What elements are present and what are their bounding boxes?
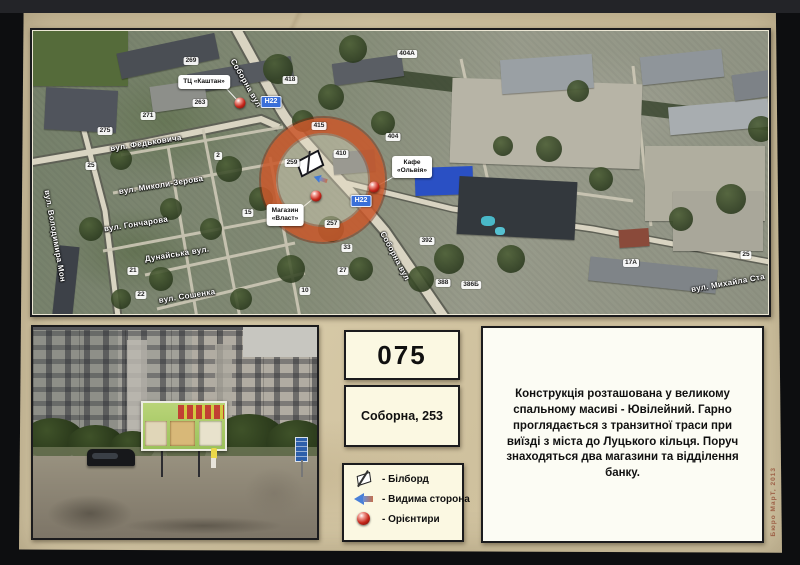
tree-blob [669,207,693,231]
road-badge: Н22 [351,195,372,207]
house-number-chip: 259 [285,159,300,167]
board-number: 075 [377,340,426,371]
water-tank [481,216,495,226]
map-panel: Соборна вулСоборна вулвул. Федьковичавул… [30,28,771,317]
board-number-plate: 075 [344,330,460,380]
house-number-chip: 33 [341,244,352,252]
billboard-leg [161,447,163,477]
billboard-icon [353,470,375,488]
black-frame: Соборна вулСоборна вулвул. Федьковичавул… [0,0,800,565]
tree-blob [277,255,305,283]
house-number-chip: 25 [85,162,96,170]
house-number-chip: 418 [283,76,298,84]
sky-patch [243,327,317,357]
map-building [44,87,118,133]
house-number-chip: 271 [141,112,156,120]
landmark-sphere-icon [369,182,380,193]
house-number-chip: 15 [242,209,253,217]
tree-blob [748,116,768,142]
map-building [33,31,128,86]
house-number-chip: 404А [397,50,417,58]
house-number-chip: 10 [299,287,310,295]
poi-label: Кафе «Ольвія» [392,156,432,178]
house-number-chip: 388 [436,279,451,287]
legend-label: - Орієнтири [382,514,440,525]
house-number-chip: 404 [386,133,401,141]
tree-blob [149,267,173,291]
photo-panel [31,325,319,540]
billboard-face [141,401,227,451]
house-number-chip: 25 [740,251,751,259]
location-photo [33,327,317,538]
water-tank [495,227,505,235]
sphere-icon [353,510,375,528]
house-number-chip: 257 [325,220,340,228]
house-number-chip: 22 [135,291,146,299]
house-number-chip: 269 [184,57,199,65]
parked-car [87,449,135,466]
tree-blob [339,35,367,63]
tree-blob [200,218,222,240]
address-text: Соборна, 253 [361,409,443,423]
road-badge: Н22 [261,96,282,108]
billboard-leg [198,447,200,477]
house-number-chip: 386Б [461,281,481,289]
landmark-sphere-icon [235,98,246,109]
tree-blob [589,167,613,191]
sign-pole [301,460,304,477]
pedestrian-legs [211,458,216,469]
legend-rows: - Білборд- Видима сторона- Орієнтири [344,469,462,529]
legend-item: - Орієнтири [344,509,462,529]
map-building [457,176,578,240]
tree-blob [493,136,513,156]
roadside-sign [295,437,308,462]
poi-label: ТЦ «Каштан» [178,75,230,89]
tree-blob [536,136,562,162]
asphalt-ground [33,456,317,538]
map-building [618,228,649,248]
house-number-chip: 263 [193,99,208,107]
watermark-text: Бюро МарТ, 2013 [770,467,777,536]
house-number-chip: 275 [98,127,113,135]
poi-label: Магазин «Власт» [267,204,304,226]
house-number-chip: 21 [127,267,138,275]
parchment-sheet: Соборна вулСоборна вулвул. Федьковичавул… [19,13,782,556]
tree-blob [230,288,252,310]
arrow-icon [353,490,375,508]
house-number-chip: 27 [337,267,348,275]
tree-blob [349,257,373,281]
tree-blob [497,245,525,273]
tree-blob [567,80,589,102]
landmark-sphere-icon [311,191,322,202]
legend-label: - Видима сторона [382,494,470,505]
house-number-chip: 410 [334,150,349,158]
tree-blob [371,111,395,135]
description-panel: Конструкція розташована у великому спаль… [481,326,764,543]
tree-blob [111,289,131,309]
legend-label: - Білборд [382,474,429,485]
tree-blob [318,84,344,110]
satellite-map: Соборна вулСоборна вулвул. Федьковичавул… [33,31,768,314]
legend-panel: - Білборд- Видима сторона- Орієнтири [342,463,464,542]
house-number-chip: 17А [623,259,639,267]
tree-blob [79,217,103,241]
house-number-chip: 415 [312,122,327,130]
tree-blob [434,244,464,274]
house-number-chip: 2 [214,152,222,160]
house-number-chip: 392 [420,237,435,245]
address-plate: Соборна, 253 [344,385,460,447]
description-text: Конструкція розташована у великому спаль… [483,387,762,482]
tree-blob [408,266,434,292]
legend-item: - Білборд [344,469,462,489]
legend-item: - Видима сторона [344,489,462,509]
tree-blob [716,184,746,214]
